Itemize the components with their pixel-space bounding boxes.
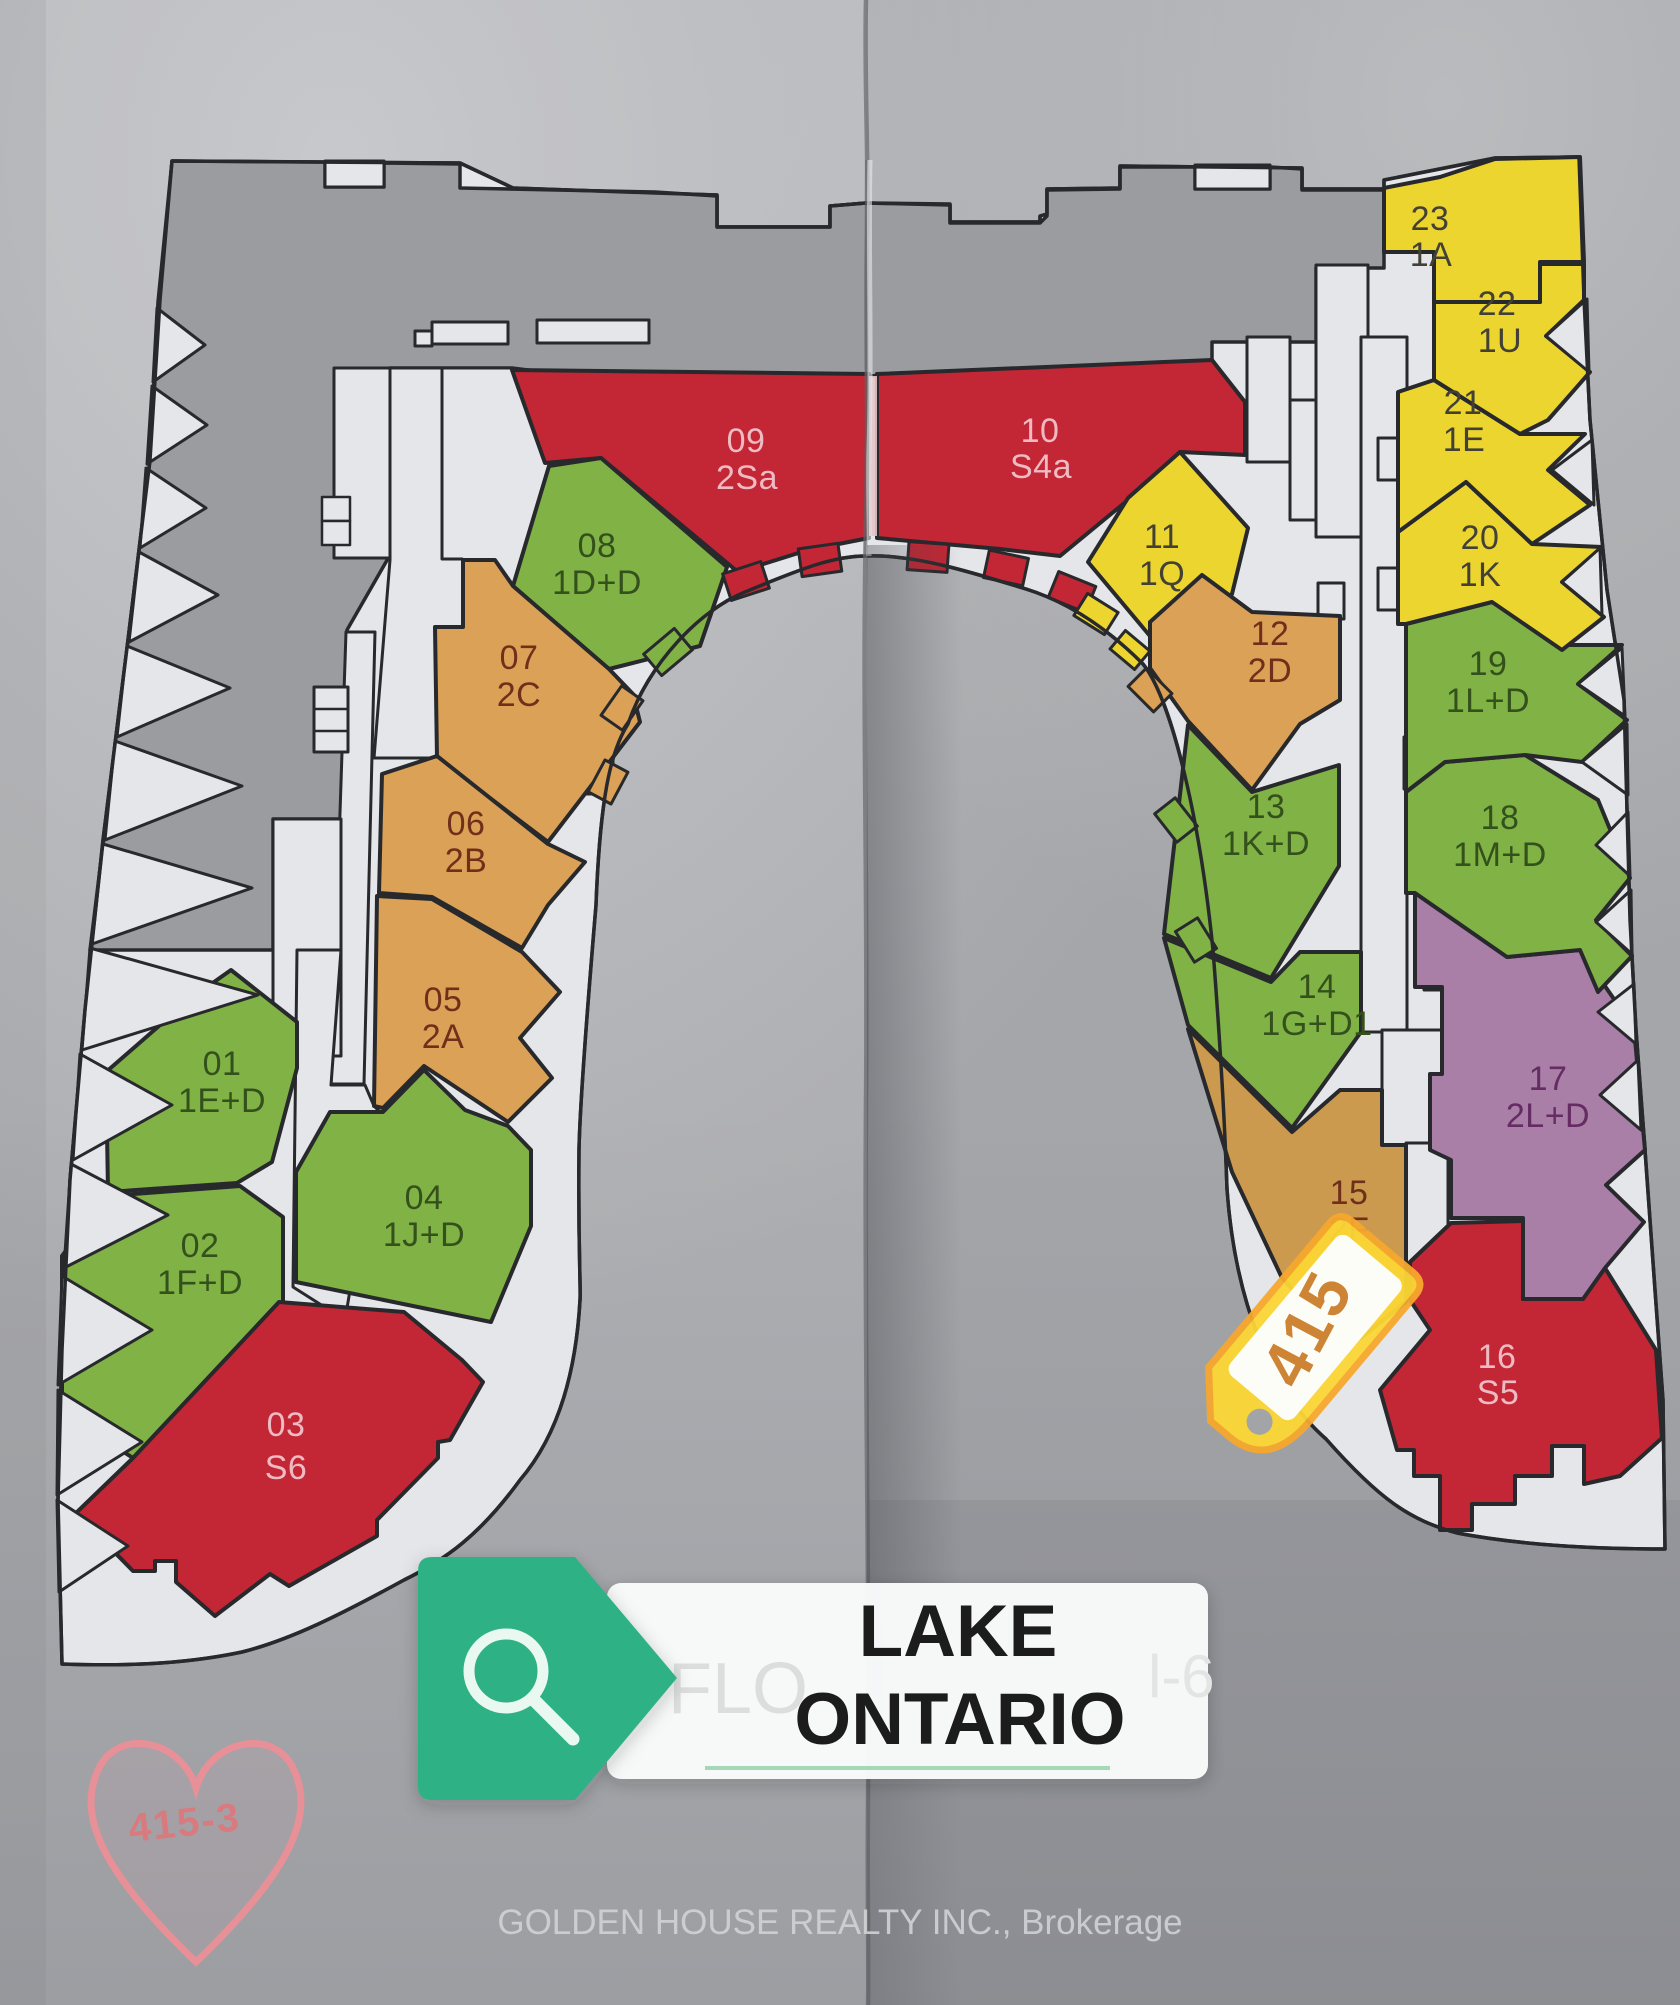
svg-text:FLO: FLO — [668, 1649, 808, 1729]
svg-text:l-6: l-6 — [1148, 1643, 1215, 1710]
svg-text:GOLDEN HOUSE REALTY INC., Brok: GOLDEN HOUSE REALTY INC., Brokerage — [497, 1903, 1182, 1942]
svg-text:ONTARIO: ONTARIO — [794, 1679, 1125, 1760]
svg-text:LAKE: LAKE — [859, 1591, 1058, 1672]
